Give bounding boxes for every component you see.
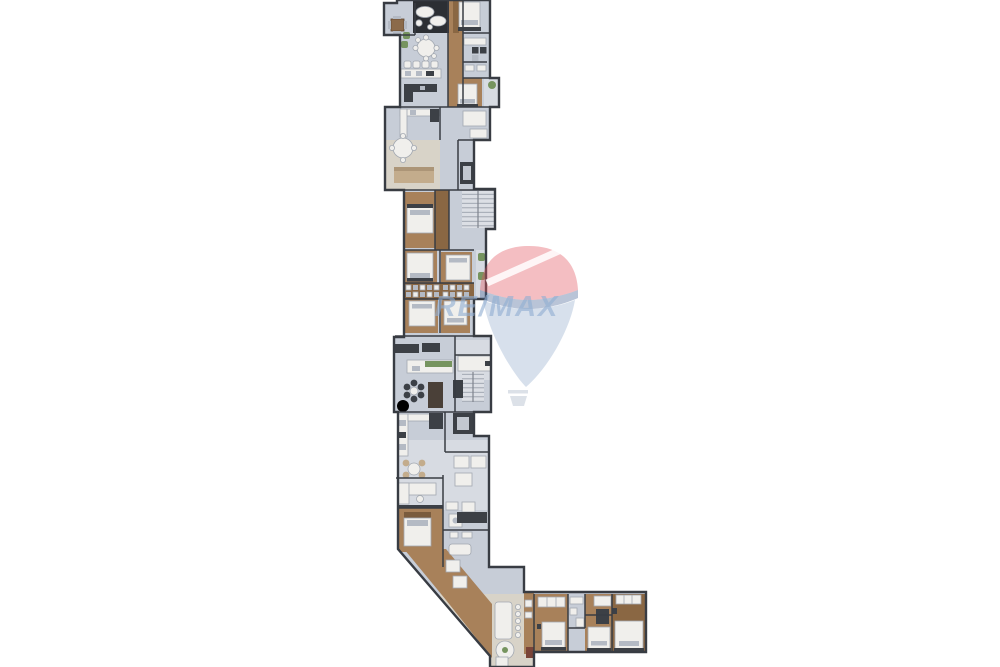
- round-rug: [397, 400, 409, 412]
- sink: [446, 502, 458, 510]
- floor-plan-image: RE/MAX: [0, 0, 1000, 667]
- desk-unit: [596, 609, 609, 624]
- counter-dark: [395, 344, 419, 353]
- den-table: [391, 19, 404, 31]
- chair: [515, 632, 520, 637]
- sink: [525, 612, 532, 618]
- stool: [422, 61, 429, 68]
- closet: [538, 597, 565, 607]
- wicker-chair: [419, 460, 426, 467]
- pillows: [619, 641, 639, 646]
- washer: [472, 47, 479, 54]
- chair: [515, 618, 520, 623]
- shower: [462, 502, 475, 512]
- stool: [413, 61, 420, 68]
- dining-table: [393, 138, 413, 158]
- pillows: [591, 641, 607, 646]
- pillows: [545, 640, 562, 645]
- bedroom-top-right: [458, 2, 481, 31]
- headboard: [458, 27, 481, 31]
- sink: [410, 110, 416, 115]
- bed: [588, 627, 610, 649]
- bathtub: [449, 544, 471, 555]
- sink: [405, 71, 411, 76]
- watermark-text: RE/MAX: [435, 291, 560, 323]
- headboard: [541, 647, 566, 651]
- curved-sofa: [416, 7, 434, 18]
- table-plant: [502, 647, 508, 653]
- fridge: [430, 109, 439, 122]
- sink: [412, 366, 420, 371]
- toilet: [570, 608, 577, 615]
- balcony-plant: [488, 81, 496, 89]
- dryer: [480, 47, 487, 54]
- toilet: [525, 600, 532, 607]
- chair: [515, 625, 520, 630]
- stool: [431, 61, 438, 68]
- wardrobe: [594, 596, 611, 606]
- wood-hallway: [435, 190, 449, 250]
- tall-cabinet: [428, 382, 443, 408]
- planter: [478, 253, 485, 261]
- coffee-table: [417, 496, 424, 503]
- floor-plan-svg: RE/MAX: [0, 0, 1000, 667]
- sink: [477, 65, 486, 71]
- shower: [576, 618, 584, 627]
- pantry: [429, 413, 443, 429]
- chair: [515, 611, 520, 616]
- lounge: [413, 0, 449, 33]
- storage-unit: [463, 111, 486, 126]
- wicker-chair: [403, 460, 410, 467]
- bed-headboard: [404, 512, 431, 518]
- dryer: [453, 576, 467, 588]
- headboard: [587, 648, 611, 651]
- long-dining-table: [495, 602, 512, 639]
- plant: [401, 41, 408, 48]
- den: [388, 16, 407, 34]
- storage: [455, 473, 472, 486]
- herb-planter: [425, 361, 452, 367]
- toilet: [465, 65, 474, 71]
- sofa: [394, 170, 434, 183]
- closet: [616, 595, 641, 604]
- chair: [515, 604, 520, 609]
- washer: [446, 560, 460, 572]
- storage-unit: [470, 129, 487, 138]
- core-upper: [460, 162, 494, 228]
- vanity: [570, 597, 583, 604]
- table: [454, 456, 469, 468]
- pillows: [407, 520, 428, 526]
- balloon-basket: [510, 396, 527, 406]
- round-table: [408, 463, 420, 475]
- toilet: [450, 532, 458, 538]
- table: [471, 456, 486, 468]
- stove: [426, 71, 434, 76]
- stool: [404, 61, 411, 68]
